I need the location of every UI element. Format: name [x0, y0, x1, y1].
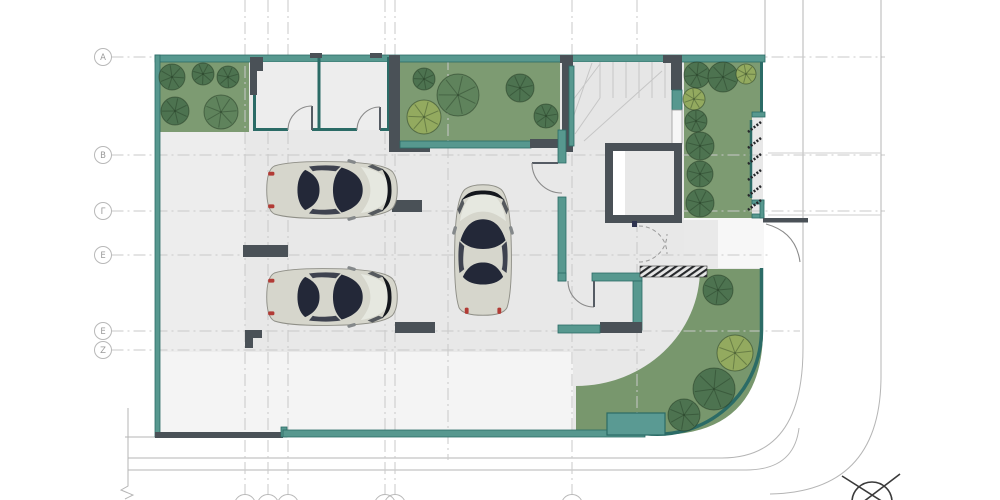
tree-icon [736, 64, 756, 84]
wall-cap [310, 53, 322, 58]
side-drive-strip [160, 132, 245, 354]
tree-icon [683, 88, 705, 110]
grid-label: Z [100, 346, 106, 356]
tree-icon [217, 66, 239, 88]
entry-door-jamb [632, 221, 637, 227]
planter-box [607, 413, 665, 435]
tree-icon [684, 62, 710, 88]
tree-icon [686, 189, 714, 217]
wall-cap [370, 53, 382, 58]
tree-icon [708, 62, 738, 92]
tree-icon [668, 399, 700, 431]
column [243, 245, 288, 257]
tree-icon [703, 275, 733, 305]
car-top-view [267, 266, 398, 328]
car-top-view [267, 159, 398, 221]
garden-edge-wall [400, 141, 531, 148]
room-wall-bottom-teal [558, 325, 600, 333]
shear-wall [389, 55, 400, 150]
corridor-wall [592, 273, 642, 281]
tree-icon [159, 64, 185, 90]
stair-wall-right-lining [672, 90, 682, 110]
stair-wall-right [671, 57, 682, 90]
stair-window [672, 110, 682, 144]
stair-wall-left-lining [569, 66, 574, 146]
boundary-wall-bottom-dark [155, 432, 283, 438]
grid-label: E [100, 251, 105, 261]
tree-icon [204, 95, 238, 129]
car-icon [267, 266, 398, 328]
tree-icon [685, 110, 707, 132]
wall-segment [530, 139, 562, 148]
grid-label: Γ [101, 207, 106, 217]
tree-icon [693, 368, 735, 410]
driveway-gate-wall [763, 218, 808, 223]
column [392, 200, 422, 212]
tree-icon [413, 68, 435, 90]
tree-icon [161, 97, 189, 125]
grid-label: A [100, 53, 106, 63]
car-top-view [452, 185, 514, 316]
car-icon [267, 159, 398, 221]
corridor-wall [558, 130, 566, 163]
gate-post-notch [760, 200, 764, 218]
tree-branch-line [545, 116, 546, 127]
grid-label: E [100, 327, 105, 337]
tree-icon [717, 335, 753, 371]
boundary-wall-bottom-teal [283, 430, 645, 437]
elevator-door-gap [613, 151, 625, 215]
storage-rooms-floor [253, 62, 390, 130]
entry-walkway-strip [684, 220, 718, 268]
front-yard-paving [158, 352, 573, 435]
car-icon [452, 185, 514, 316]
floor-plan-canvas: ABΓEEZ [0, 0, 1000, 500]
boundary-step-notch [752, 112, 765, 117]
tree-icon [437, 74, 479, 116]
boundary-wall-left [155, 55, 160, 437]
grid-label: B [100, 151, 106, 161]
corridor-wall [558, 273, 566, 281]
tree-icon [686, 132, 714, 160]
corridor-wall [558, 197, 566, 281]
tree-icon [534, 104, 558, 128]
tree-icon [407, 100, 441, 134]
tree-icon [687, 161, 713, 187]
tree-icon [506, 74, 534, 102]
tree-icon [192, 63, 214, 85]
wall-cap [560, 55, 573, 63]
column [395, 322, 435, 333]
tree-branch-line [408, 116, 424, 117]
room-wall-bottom-dark [600, 322, 642, 333]
ramp-hatch [640, 266, 707, 277]
